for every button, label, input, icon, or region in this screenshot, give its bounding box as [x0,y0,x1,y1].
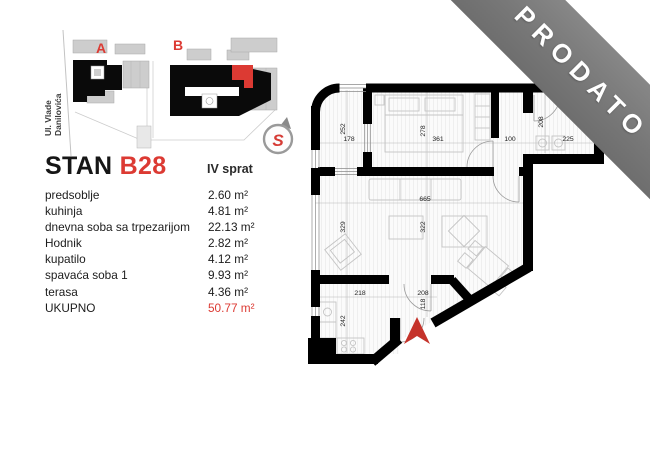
floor-label: IV sprat [207,162,253,176]
room-table: predsoblje 2.60 m² kuhinja 4.81 m² dnevn… [45,187,285,316]
room-name: terasa [45,284,208,300]
site-plan: A B Ul. Vlade Danilovića S [35,8,305,158]
building-b-core [202,94,217,108]
room-row: kupatilo 4.12 m² [45,251,285,267]
dim-label: 322 [420,221,427,233]
floor-texture [318,90,601,354]
room-area: 4.81 m² [208,203,248,219]
room-row: dnevna soba sa trpezarijom 22.13 m² [45,219,285,235]
dim-label: 329 [340,221,347,233]
compass-letter: S [272,131,284,150]
street-label: Ul. Vlade Danilovića [43,93,63,136]
room-area: 2.60 m² [208,187,248,203]
dim-label: 118 [420,298,427,309]
room-name: kuhinja [45,203,208,219]
building-a-label: A [96,40,106,56]
dim-label: 208 [538,116,545,128]
dim-label: 218 [354,290,366,297]
street-line [63,30,71,156]
dim-label: 278 [420,125,427,137]
dim-label: 208 [417,290,429,297]
room-area: 2.82 m² [208,235,248,251]
title-line: STAN B28 IV sprat [45,152,285,182]
room-row: kuhinja 4.81 m² [45,203,285,219]
dim-label: 178 [343,136,355,143]
dim-label: 665 [419,196,431,203]
apartment-title-text: STAN [45,152,112,180]
svg-text:Ul. Vlade: Ul. Vlade [43,100,53,136]
dim-label: 361 [432,136,444,143]
total-row: UKUPNO 50.77 m² [45,300,285,316]
room-name: dnevna soba sa trpezarijom [45,219,208,235]
room-name: Hodnik [45,235,208,251]
room-area: 9.93 m² [208,267,248,283]
dim-label: 242 [340,315,347,327]
dim-label: 225 [562,136,574,143]
room-area: 4.12 m² [208,251,248,267]
compass: S [264,117,292,153]
room-row: terasa 4.36 m² [45,284,285,300]
total-label: UKUPNO [45,300,208,316]
total-area: 50.77 m² [208,300,255,316]
apartment-unit: B28 [120,152,167,180]
svg-text:Danilovića: Danilovića [53,93,63,136]
dim-label: 252 [340,123,347,135]
room-row: Hodnik 2.82 m² [45,235,285,251]
room-row: predsoblje 2.60 m² [45,187,285,203]
dim-label: 100 [504,136,516,143]
building-b-label: B [173,37,183,53]
room-name: spavaća soba 1 [45,267,208,283]
apartment-title: STAN B28 [45,152,166,180]
room-name: kupatilo [45,251,208,267]
apartment-info: STAN B28 IV sprat predsoblje 2.60 m² kuh… [45,152,285,316]
room-area: 4.36 m² [208,284,248,300]
room-name: predsoblje [45,187,208,203]
room-row: spavaća soba 1 9.93 m² [45,267,285,283]
room-area: 22.13 m² [208,219,255,235]
brochure-page: A B Ul. Vlade Danilovića S STAN B28 IV s… [0,0,650,454]
